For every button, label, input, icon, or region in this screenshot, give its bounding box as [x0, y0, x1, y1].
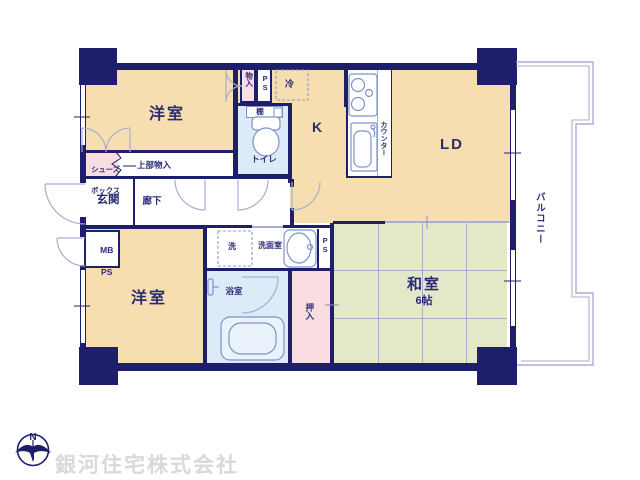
- label-shoe-box: シューズ ボックス: [83, 154, 116, 207]
- compass-icon: N: [15, 432, 51, 466]
- wall-kitchen-stub: [344, 70, 348, 107]
- wall-hall-top: [134, 176, 238, 179]
- wall-shoebox-top: [80, 150, 233, 153]
- label-western-room-bottom: 洋室: [117, 290, 181, 308]
- label-toilet: トイレ: [246, 155, 282, 165]
- wall-hall-bottom: [80, 225, 207, 229]
- label-meter-box-line2: PS: [101, 267, 112, 277]
- wall-washroom-bath: [207, 268, 332, 271]
- kitchen-strip-divider: [377, 70, 378, 177]
- label-counter: カウンター: [379, 121, 387, 165]
- label-pipe-space-top: PS: [260, 74, 269, 102]
- label-pipe-space-right: PS: [320, 236, 329, 262]
- label-upper-storage: 上部物入: [137, 161, 171, 171]
- entry-door-swing: [45, 184, 85, 266]
- label-meter-box-line1: MB: [100, 245, 113, 255]
- wall-top: [114, 63, 478, 70]
- floor-bathroom: [207, 271, 288, 363]
- label-washroom: 洗面室: [252, 241, 288, 250]
- wall-bottom: [114, 363, 478, 371]
- wall-right: [510, 326, 516, 347]
- label-bathroom: 浴室: [215, 287, 253, 297]
- tatami-gridline: [466, 223, 467, 363]
- wall-toilet-bottom: [238, 174, 292, 179]
- kitchen-strip-left-line: [346, 107, 348, 177]
- label-hallway: 廊下: [138, 197, 166, 208]
- tatami-gridline: [334, 318, 507, 319]
- label-living-dining: LD: [430, 136, 474, 153]
- balcony-outline: [516, 62, 593, 365]
- company-watermark: 銀河住宅株式会社: [55, 449, 239, 479]
- label-closet-oshiire: 押入: [304, 303, 314, 335]
- floor-upper-storage-row: [118, 152, 233, 176]
- label-western-room-top: 洋室: [135, 106, 199, 124]
- wall-washroom-top: [207, 225, 252, 228]
- label-japanese-room: 和室: [395, 276, 453, 293]
- wall-closet-japanese: [330, 223, 334, 363]
- label-washer: 洗: [222, 242, 242, 251]
- pillar-bottom-left: [79, 347, 118, 385]
- wall-bath-closet: [288, 271, 292, 363]
- pillar-bottom-right: [477, 347, 517, 385]
- window-right-japanese: [510, 250, 516, 326]
- label-storage-monoire: 物入: [244, 72, 253, 102]
- pillar-top-left: [79, 48, 117, 85]
- label-shoe-box-line2: ボックス: [91, 186, 120, 195]
- wall-toilet-top: [238, 103, 292, 106]
- label-refrigerator: 冷: [285, 79, 294, 89]
- label-shoe-box-line1: シューズ: [91, 165, 120, 174]
- wall-bedroom-right: [233, 70, 238, 179]
- label-balcony: バルコニー: [533, 192, 544, 284]
- window-right-ld: [510, 110, 516, 200]
- tatami-gridline: [378, 223, 379, 363]
- floor-plan: N 洋室 K LD バルコニー 和室 6帖 洋室 玄関 廊下 トイレ 棚 物入 …: [0, 0, 640, 480]
- wall-washroom-top: [283, 225, 332, 228]
- wall-right: [510, 85, 516, 110]
- wall-washblock-left: [203, 225, 207, 363]
- entrance-step-line: [133, 179, 135, 225]
- wall-hall-kitchen: [290, 179, 294, 187]
- pillar-top-right: [477, 48, 517, 85]
- label-japanese-room-size: 6帖: [395, 295, 453, 308]
- compass-north-label: N: [29, 432, 36, 443]
- kitchen-strip-bottom-line: [346, 176, 392, 178]
- wall-hall-kitchen: [290, 208, 294, 225]
- window-left-top: [80, 85, 86, 145]
- washroom-sliding-door: [252, 226, 283, 228]
- kitchen-strip-right-line: [391, 70, 393, 177]
- label-shelf: 棚: [250, 108, 270, 117]
- label-kitchen: K: [306, 119, 328, 135]
- wall-right: [510, 200, 516, 250]
- ld-japanese-sliding-door: [385, 221, 509, 223]
- wall-toilet-right: [288, 103, 292, 183]
- tatami-gridline: [334, 270, 507, 271]
- label-meter-box: MB PS: [86, 234, 118, 289]
- wall-ld-japanese: [333, 221, 385, 224]
